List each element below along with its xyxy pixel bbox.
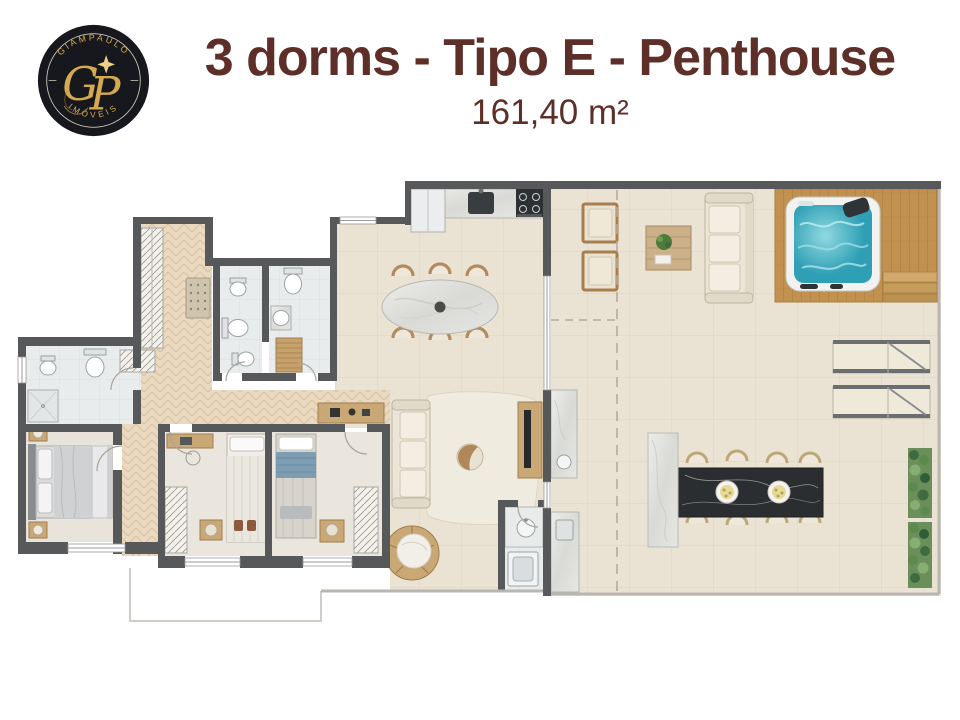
window [68, 544, 125, 552]
sun-lounger [833, 385, 930, 418]
wardrobe-hatch [354, 487, 378, 553]
hall-stub-floor [122, 424, 158, 556]
washing-machine [508, 552, 538, 586]
basin [40, 361, 56, 375]
toilet [228, 320, 248, 337]
storage-ottoman [186, 278, 210, 318]
coffee-table [646, 226, 691, 270]
floor-plan [0, 0, 960, 720]
window [18, 357, 26, 383]
plant [656, 234, 672, 250]
wardrobe-hatch [165, 487, 187, 553]
cushion [280, 506, 312, 519]
basin [273, 311, 289, 326]
window [303, 558, 352, 566]
single-bed [276, 434, 316, 538]
seat-cushion [400, 412, 426, 439]
toilet [285, 274, 302, 294]
gourmet-table [678, 468, 823, 517]
single-bed [227, 434, 267, 542]
kitchen-faucet [479, 189, 484, 194]
pouf [457, 444, 483, 470]
bidet [238, 352, 254, 366]
pillow [38, 449, 52, 479]
sliding-glass-door [544, 276, 550, 390]
slippers [234, 520, 243, 531]
kitchen-sink [468, 192, 494, 214]
shower-tray [276, 338, 302, 372]
hall-sideboard [318, 403, 384, 423]
bbq-counter [551, 390, 577, 478]
hot-tub [786, 196, 880, 291]
sun-lounger [833, 340, 930, 373]
floor-plan-page: GIAMPAULO IMÓVEIS G P 3 dorms - Tipo E -… [0, 0, 960, 720]
sofa [392, 400, 430, 508]
slab-outline [130, 568, 321, 621]
swivel-chair [385, 526, 439, 580]
deck-steps [883, 272, 937, 302]
double-bed [28, 444, 112, 520]
pillow [230, 437, 264, 451]
basin [230, 282, 246, 296]
planter [908, 448, 932, 518]
bed-runner [92, 446, 108, 518]
window [185, 558, 240, 566]
cooktop [516, 189, 543, 217]
book [655, 255, 671, 264]
table-centerpiece [435, 302, 446, 313]
bar-counter [648, 433, 678, 547]
tv [524, 410, 531, 468]
pillow [279, 437, 313, 450]
planter [908, 522, 932, 588]
service-area [505, 507, 543, 586]
counter-sink [557, 455, 571, 469]
window [340, 217, 376, 224]
tv-panel [518, 402, 542, 478]
sliding-glass-door [544, 482, 550, 508]
terrace-sofa [705, 193, 753, 303]
toilet [86, 357, 104, 377]
terrace-counter [551, 512, 579, 592]
hot-tub-water [794, 205, 872, 283]
pillow [38, 483, 52, 513]
shower [28, 390, 58, 422]
counter-sink [556, 520, 573, 540]
